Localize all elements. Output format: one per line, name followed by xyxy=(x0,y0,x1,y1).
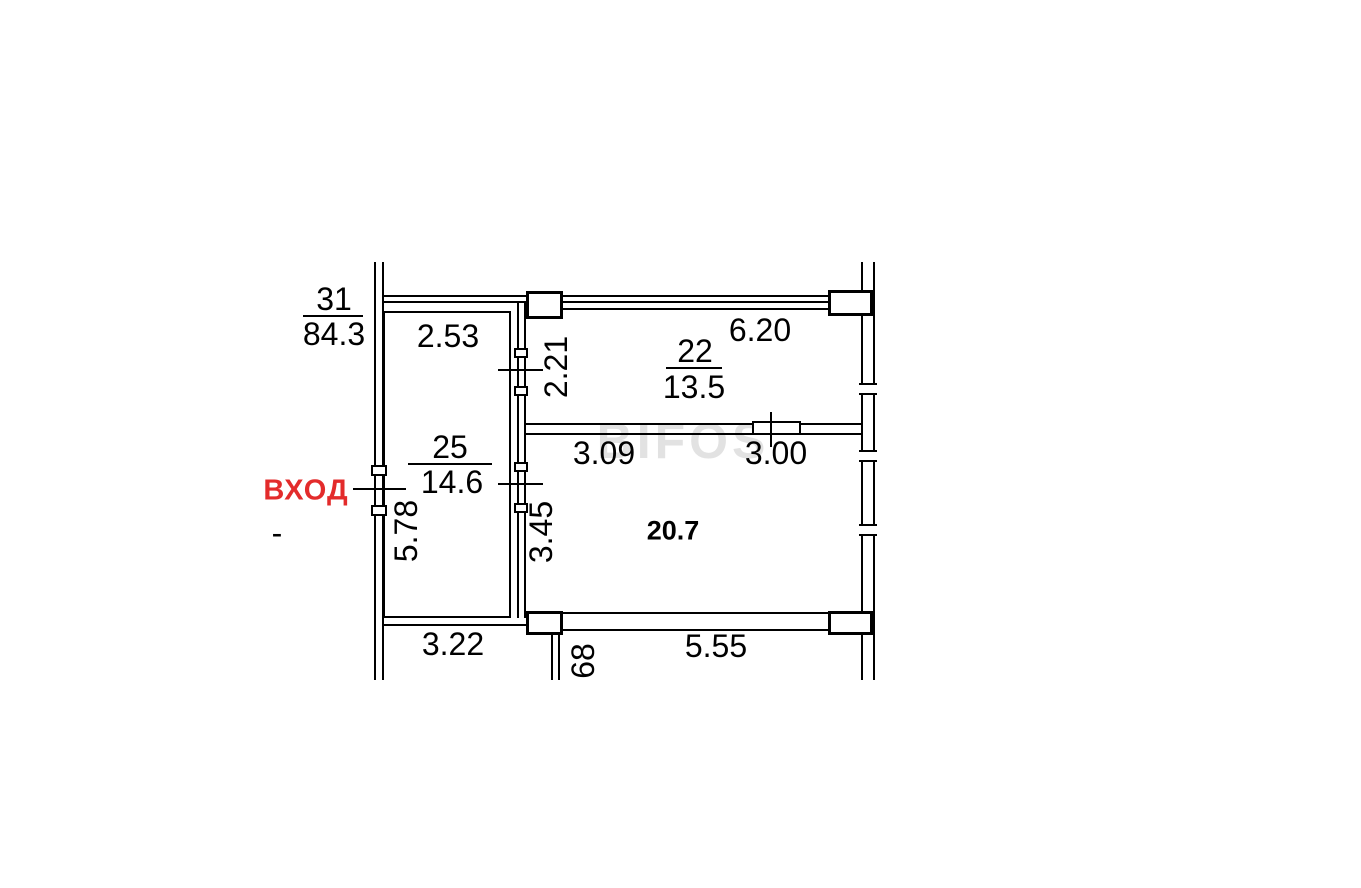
room-22-number-label: 22 xyxy=(677,335,713,367)
room-22-top-line xyxy=(526,308,862,310)
entrance-label: ВХОД xyxy=(263,477,348,506)
entrance-tick xyxy=(353,488,406,490)
right-wall-outer-line xyxy=(873,262,875,680)
stub-wall-right-line xyxy=(558,634,560,680)
door3-jamb xyxy=(752,421,801,435)
entrance-jamb-top xyxy=(371,465,387,476)
bottom-wall-right-upper-line xyxy=(562,612,829,614)
room-25-number-label: 25 xyxy=(432,431,468,463)
dimension-3-22: 3.22 xyxy=(422,628,484,660)
dimension-2-21: 2.21 xyxy=(540,336,572,398)
door1-tick xyxy=(498,369,543,371)
floor-plan-canvas: BIFOS 31 84.3 2.53 2.21 6 xyxy=(0,0,1361,888)
pier-bottom-right xyxy=(828,611,873,635)
window-transom-1 xyxy=(859,383,877,395)
dimension-3-45: 3.45 xyxy=(525,501,557,563)
window-transom-2 xyxy=(859,450,877,462)
top-wall-right-outer-line xyxy=(561,295,832,297)
pier-bottom-middle xyxy=(526,611,563,635)
entrance-dash: - xyxy=(272,517,283,549)
room-22-area-label: 13.5 xyxy=(663,371,725,403)
pier-top-middle xyxy=(526,291,563,319)
entrance-jamb-bottom xyxy=(371,505,387,516)
wall-22-20-upper-line xyxy=(526,423,862,425)
room-20-area-label: 20.7 xyxy=(647,518,700,545)
dimension-68: 68 xyxy=(567,643,599,679)
unit-number-label: 31 xyxy=(316,283,352,315)
dimension-5-55: 5.55 xyxy=(685,630,747,662)
window-transom-3 xyxy=(859,524,877,536)
door1-jamb-bottom xyxy=(514,386,528,396)
door2-tick xyxy=(498,483,543,485)
stub-wall-left-line xyxy=(551,634,553,680)
door1-jamb-top xyxy=(514,348,528,358)
room-25-area-label: 14.6 xyxy=(421,466,483,498)
top-wall-left-inner-line xyxy=(384,301,530,303)
dimension-3-00: 3.00 xyxy=(745,437,807,469)
unit-area-label: 84.3 xyxy=(303,318,365,350)
dimension-5-78: 5.78 xyxy=(390,500,422,562)
dimension-3-09: 3.09 xyxy=(573,437,635,469)
door2-jamb-top xyxy=(514,462,528,472)
top-wall-right-inner-line xyxy=(561,301,832,303)
dimension-2-53: 2.53 xyxy=(417,320,479,352)
top-wall-left-outer-line xyxy=(384,295,530,297)
dimension-6-20: 6.20 xyxy=(729,314,791,346)
pier-top-right xyxy=(828,290,873,316)
